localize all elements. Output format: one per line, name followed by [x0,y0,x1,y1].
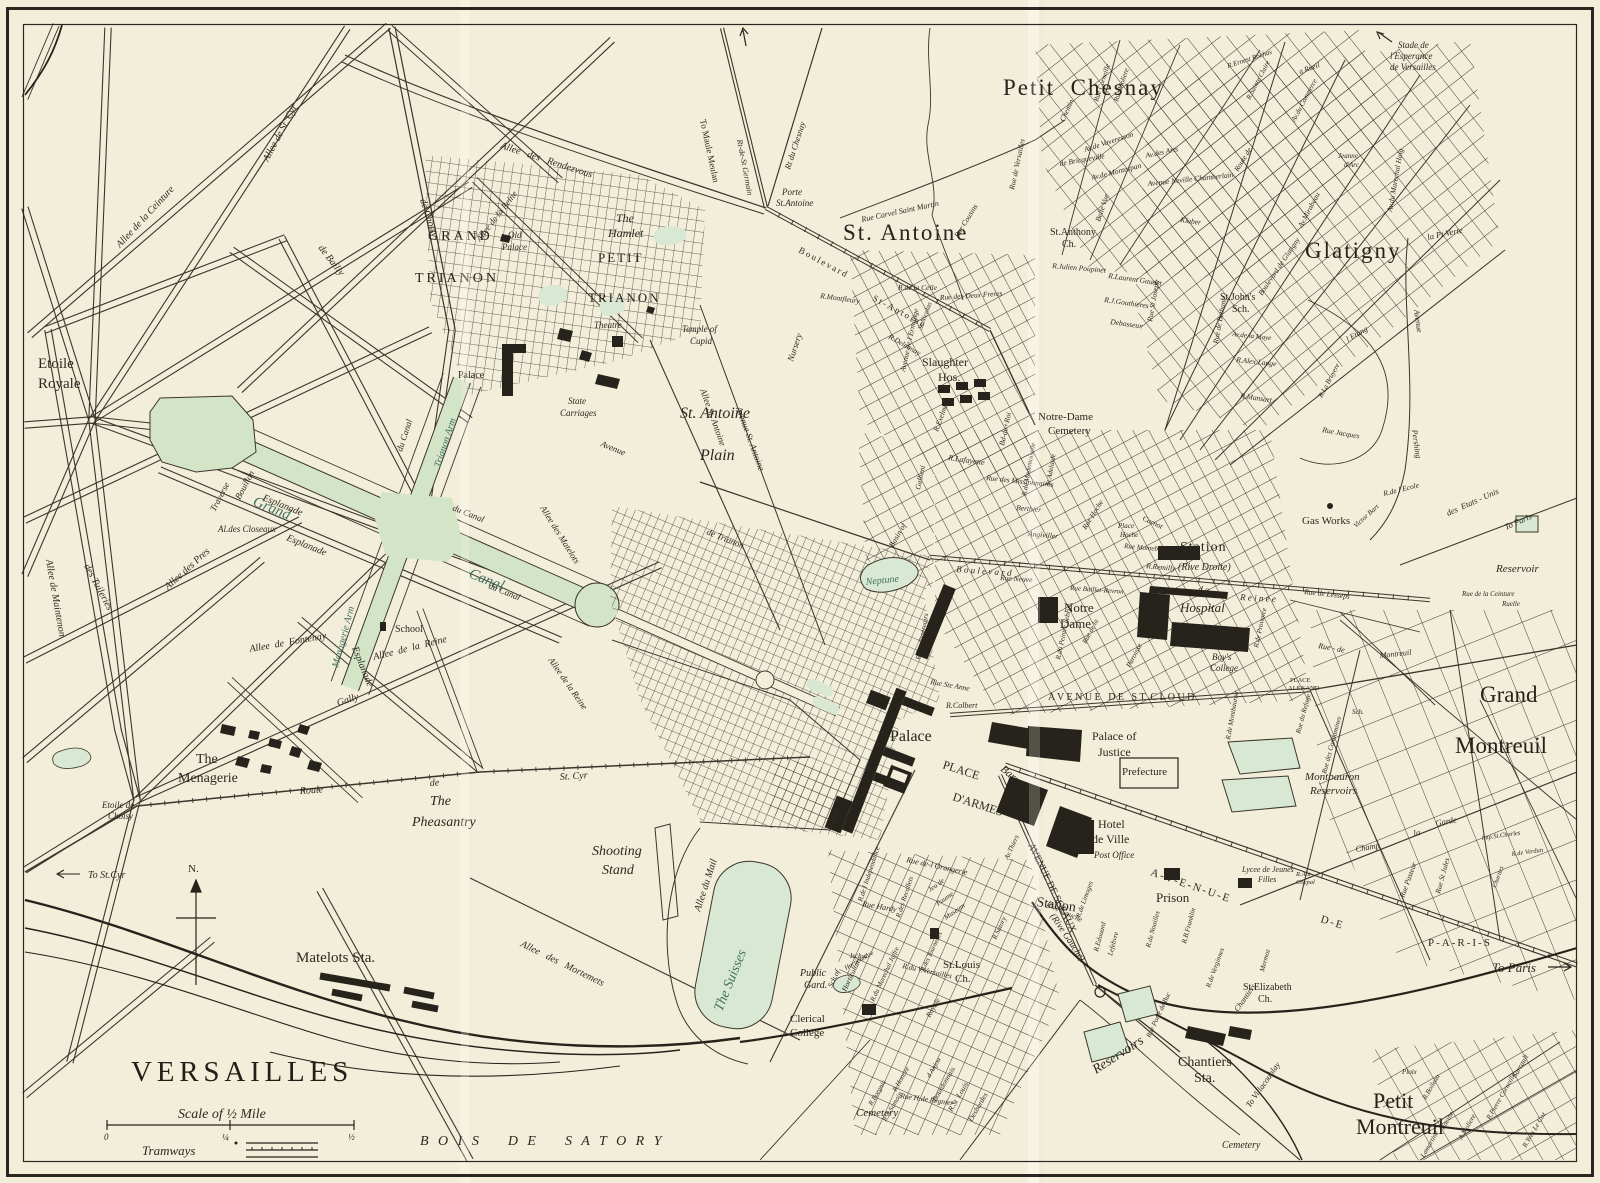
svg-text:0: 0 [104,1132,109,1142]
svg-text:The: The [616,211,635,225]
svg-text:PLACE: PLACE [1290,677,1311,684]
svg-text:Ch.: Ch. [955,973,971,985]
svg-text:TRIANON: TRIANON [588,290,661,305]
svg-text:Matelots Sta.: Matelots Sta. [296,950,375,966]
svg-text:College: College [790,1027,824,1039]
svg-text:To Paris: To Paris [1492,960,1536,975]
svg-text:St.Louis: St.Louis [943,959,980,971]
svg-text:¼: ¼ [222,1132,229,1142]
svg-text:Hotel: Hotel [1098,817,1125,831]
svg-text:Coypal: Coypal [1296,879,1315,886]
svg-text:Al.des Closeaux: Al.des Closeaux [217,524,276,534]
svg-text:P-A-R-I-S: P-A-R-I-S [1428,937,1492,949]
svg-text:Public: Public [799,968,827,979]
svg-text:Station: Station [1180,540,1227,555]
svg-text:Reservoirs: Reservoirs [1309,785,1357,797]
svg-text:Shooting: Shooting [592,844,642,859]
svg-text:Ch.: Ch. [1258,994,1272,1005]
svg-text:Hos.: Hos. [938,370,960,384]
svg-text:Tramways: Tramways [142,1143,195,1158]
svg-text:d'Arc: d'Arc [1344,161,1360,169]
svg-text:The: The [196,752,218,767]
svg-text:A V E N U E D E S T C L O: A V E N U E D E S T C L O U D [1048,692,1194,703]
svg-text:Slaughter: Slaughter [922,355,968,369]
svg-text:R e i n e e: R e i n e e [1239,592,1276,604]
svg-text:Sch.: Sch. [1352,708,1364,716]
svg-text:Carriages: Carriages [560,408,597,418]
svg-text:Lycee de Jeunes: Lycee de Jeunes [1241,865,1294,874]
svg-text:Post Office: Post Office [1093,850,1134,860]
svg-text:R.Ant: R.Ant [1295,871,1311,878]
svg-text:Jeanne: Jeanne [1338,152,1358,160]
svg-text:N.: N. [188,863,199,875]
svg-text:Sta.: Sta. [1194,1071,1215,1086]
svg-text:Palace of: Palace of [1092,729,1136,743]
svg-text:Montreuil: Montreuil [1455,733,1547,758]
svg-text:Temple of: Temple of [682,324,718,334]
svg-text:Place: Place [1117,522,1134,530]
svg-text:Reservoir: Reservoir [1495,563,1539,575]
svg-text:Filles: Filles [1257,875,1276,884]
svg-text:State: State [568,396,586,406]
svg-text:School: School [395,624,423,635]
svg-text:de: de [429,777,440,789]
svg-text:Glatigny: Glatigny [1305,238,1402,263]
svg-text:To St.Cyr: To St.Cyr [88,870,126,881]
svg-text:Hoche: Hoche [1119,531,1138,539]
svg-text:Petit: Petit [1373,1088,1413,1113]
svg-text:B O I S D E S A T O R Y: B O I S D E S A T O R Y [420,1134,665,1149]
svg-text:l'Esperance: l'Esperance [1390,51,1432,61]
svg-text:Prison: Prison [1156,890,1190,905]
svg-text:Stade de: Stade de [1398,40,1429,50]
svg-text:Hospital: Hospital [1179,600,1225,615]
svg-text:Sch.: Sch. [1232,304,1250,315]
svg-text:The: The [430,794,451,809]
svg-text:Stand: Stand [602,863,635,878]
svg-text:Gas Works: Gas Works [1302,515,1350,527]
svg-text:Menagerie: Menagerie [178,771,238,786]
svg-text:Etoile: Etoile [38,356,74,372]
svg-text:(Rive Droite): (Rive Droite) [1178,562,1231,573]
svg-text:Porte: Porte [781,187,802,197]
svg-text:St.Antoine: St.Antoine [776,198,813,208]
svg-text:Etoile de: Etoile de [101,800,134,810]
svg-text:Palace: Palace [501,242,527,252]
svg-text:Ruelle: Ruelle [1501,600,1520,608]
svg-text:Montbauron: Montbauron [1304,771,1360,783]
svg-text:Theatre: Theatre [594,320,622,330]
svg-text:½: ½ [348,1132,355,1142]
svg-text:d e: d e [1198,584,1209,595]
svg-text:Royale: Royale [38,376,81,392]
svg-text:St.Anthony: St.Anthony [1050,227,1096,238]
svg-text:Palace: Palace [890,728,932,745]
svg-text:Justice: Justice [1098,745,1131,759]
svg-text:Cupid: Cupid [690,336,713,346]
svg-text:Boy's: Boy's [1212,652,1232,662]
svg-text:Petit Chesnay: Petit Chesnay [1003,75,1164,100]
svg-text:Notre-Dame: Notre-Dame [1038,411,1093,423]
svg-text:de Versailles: de Versailles [1390,62,1436,72]
svg-text:R.Colbert: R.Colbert [945,701,978,710]
svg-text:Rue de la Ceinture: Rue de la Ceinture [1461,590,1514,598]
svg-text:Gard.: Gard. [804,980,827,991]
svg-text:Clerical: Clerical [790,1013,825,1025]
svg-text:PETIT: PETIT [598,250,643,265]
svg-text:Plain: Plain [699,447,735,464]
svg-text:Chantiers: Chantiers [1178,1055,1232,1070]
svg-text:ALEXAND: ALEXAND [1288,685,1320,692]
svg-text:Old: Old [508,230,522,240]
svg-text:TRIANON: TRIANON [415,271,499,286]
svg-text:St. Cyr: St. Cyr [559,770,588,783]
svg-text:R.de la Celle: R.de la Celle [897,283,938,292]
svg-text:College: College [1210,663,1238,673]
svg-text:de Ville: de Ville [1092,832,1129,846]
svg-text:Hamlet: Hamlet [607,226,644,240]
svg-text:Ploix: Ploix [1401,1068,1418,1076]
svg-text:Cemetery: Cemetery [1048,425,1091,437]
svg-text:Scale of ½ Mile: Scale of ½ Mile [178,1107,266,1122]
svg-text:Cemetery: Cemetery [1222,1140,1261,1151]
svg-text:Choisy: Choisy [108,811,133,821]
svg-text:Prefecture: Prefecture [1122,766,1167,778]
svg-text:Grand: Grand [1480,682,1538,707]
svg-text:Route: Route [298,784,324,797]
svg-text:VERSAILLES: VERSAILLES [131,1056,353,1088]
